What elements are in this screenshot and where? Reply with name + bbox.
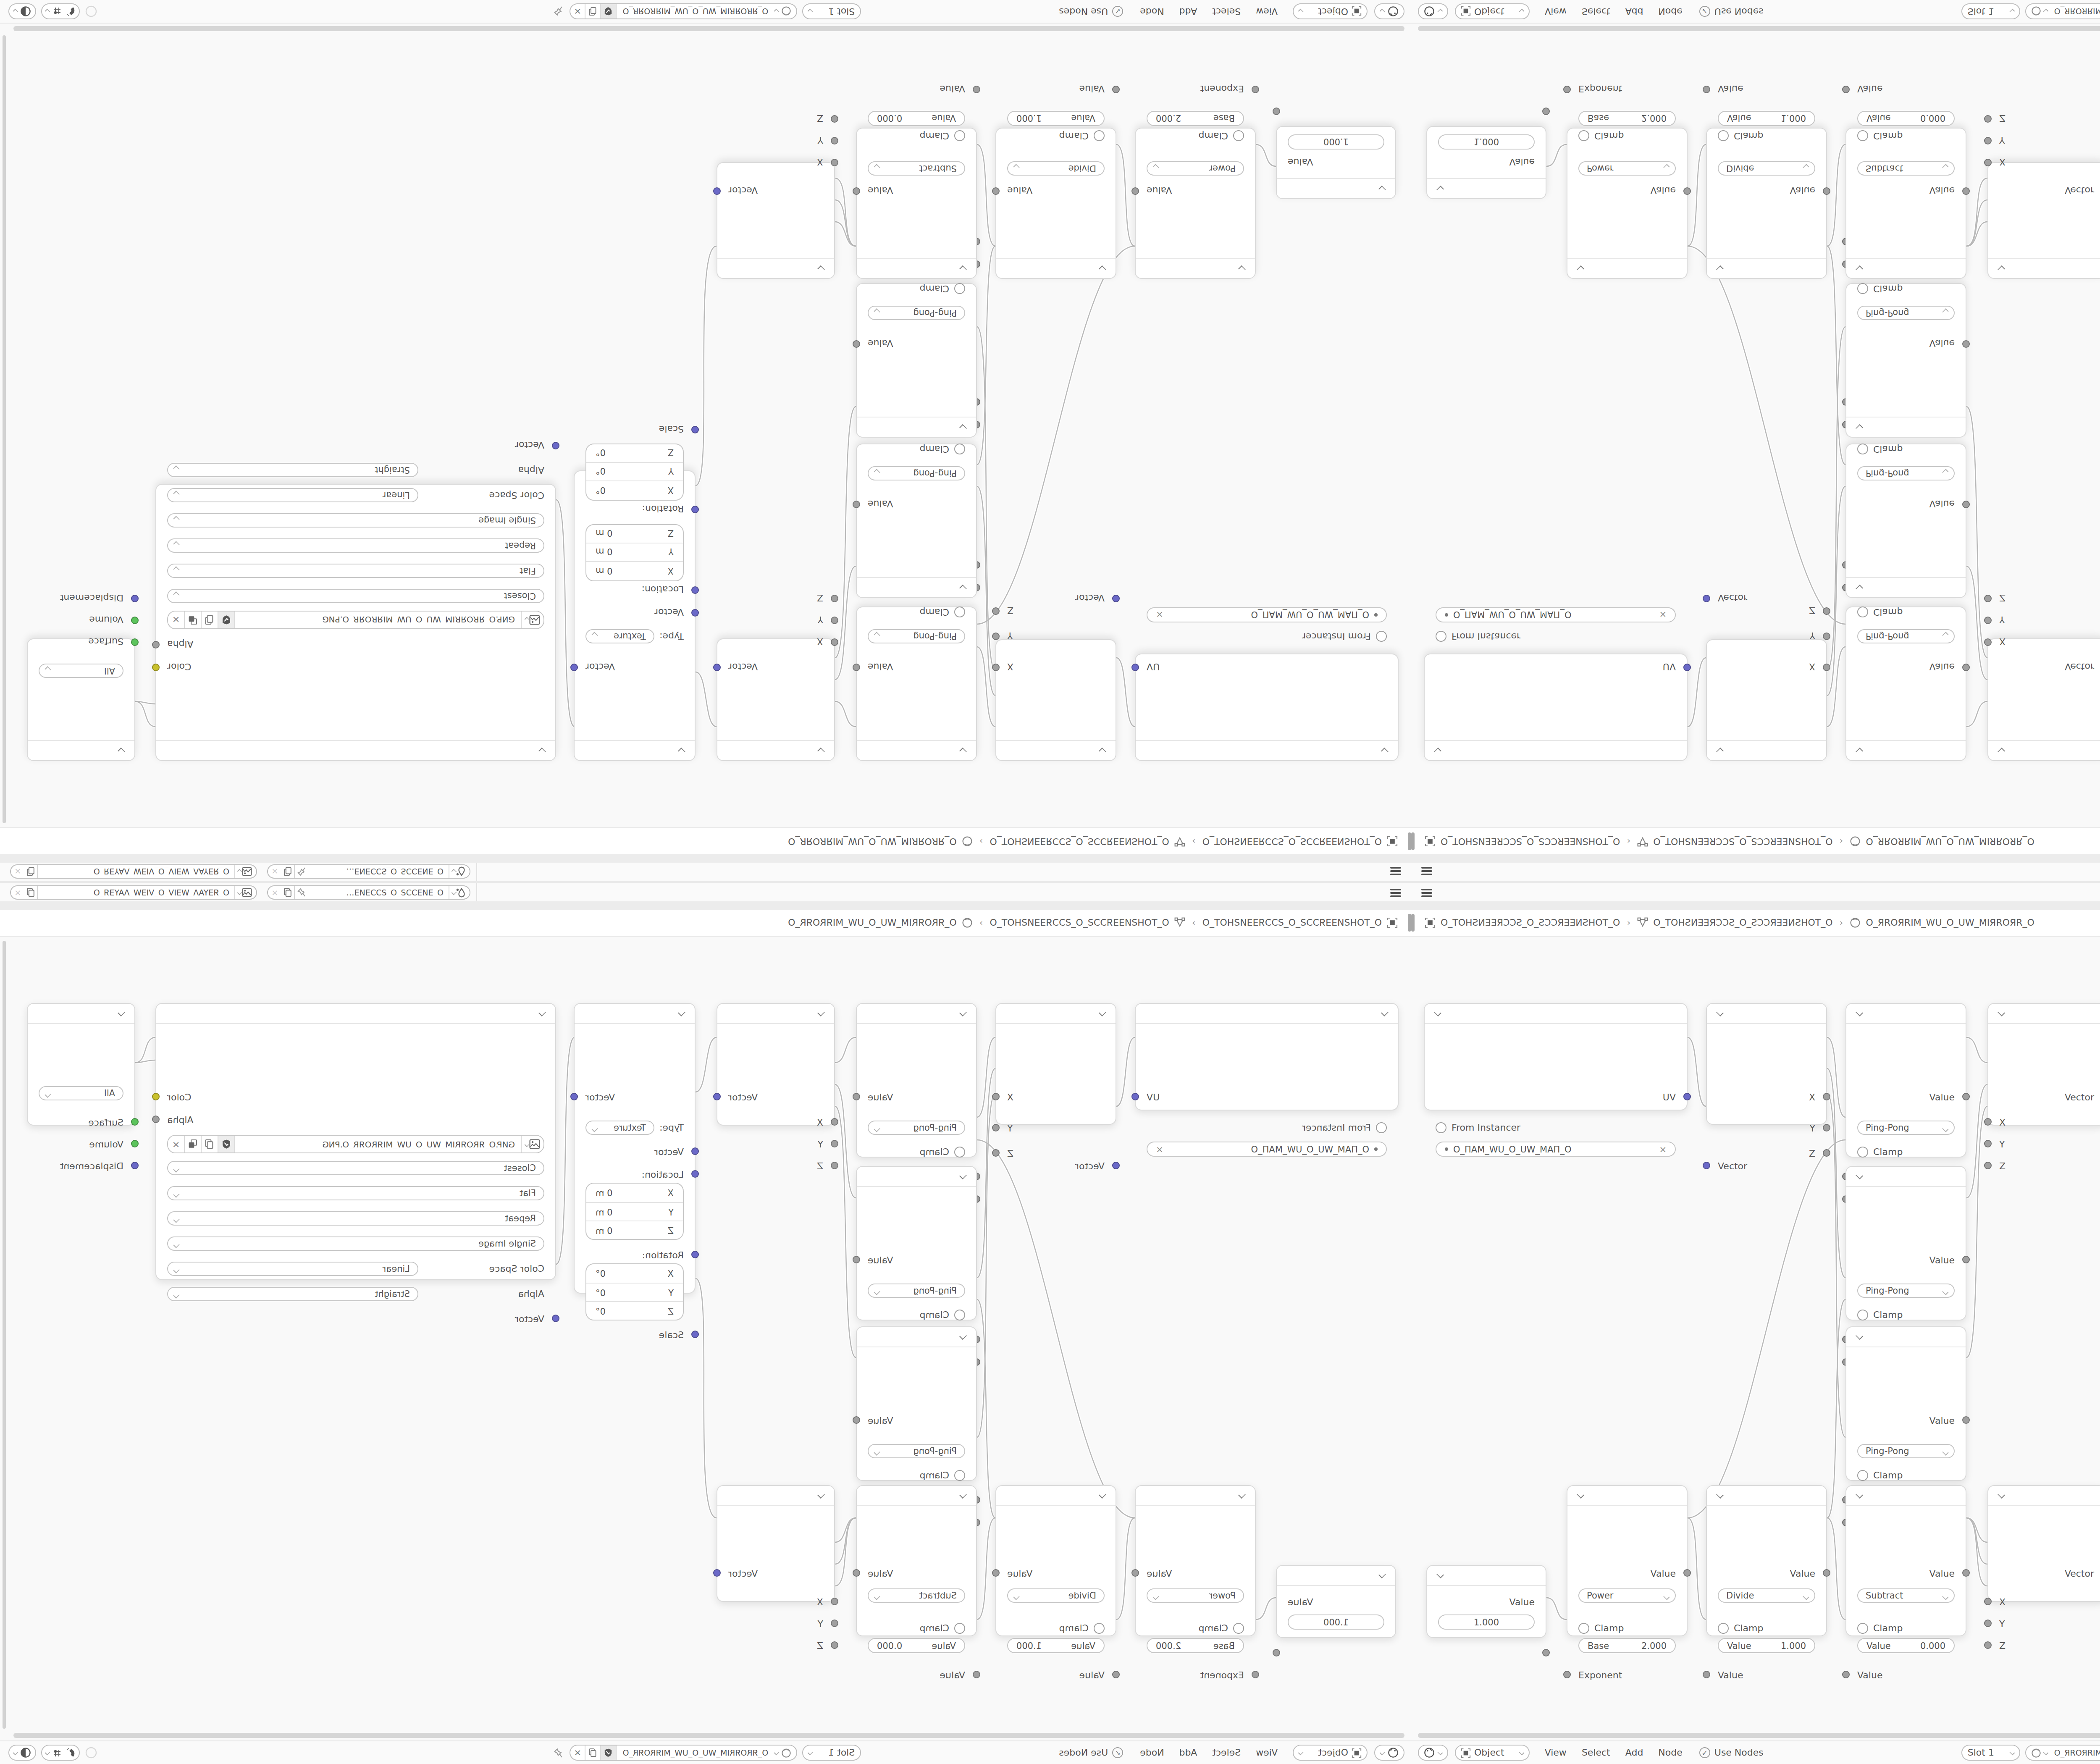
- collapse-chevron-icon[interactable]: [118, 748, 125, 755]
- value-output-socket[interactable]: [1962, 340, 1970, 348]
- breadcrumb-scrollbar[interactable]: [1408, 914, 1411, 932]
- vector-input-socket[interactable]: [552, 442, 559, 449]
- operation-dropdown[interactable]: Ping-Pong: [1857, 1444, 1955, 1458]
- node-uv-map[interactable]: UV From Instancer O_ПAM_WU_O_UW_MAП_O ×: [1424, 1003, 1688, 1110]
- operation-dropdown[interactable]: Ping-Pong: [1857, 630, 1955, 644]
- overlays-toggle[interactable]: [8, 3, 36, 19]
- x-input-socket[interactable]: [1984, 1598, 1992, 1605]
- image-datablock-field[interactable]: GИP.O_ЯROЯRIM_WU_O_UW_MIЯROЯR_O.PNG ×: [167, 611, 544, 629]
- overlays-toggle[interactable]: [8, 1745, 36, 1761]
- material-name[interactable]: O_ЯROЯRIM_WU_O_UW_MIЯROЯR_O: [617, 1748, 774, 1757]
- breadcrumb-scrollbar[interactable]: [1411, 914, 1415, 932]
- value-input-socket[interactable]: [1112, 1671, 1120, 1678]
- collapse-chevron-icon[interactable]: [1577, 1491, 1584, 1499]
- node-value[interactable]: Value 1.000: [1426, 126, 1546, 199]
- clamp-checkbox[interactable]: Clamp: [1578, 129, 1676, 144]
- collapse-chevron-icon[interactable]: [1856, 1491, 1863, 1499]
- editor-split-divider[interactable]: [476, 883, 477, 901]
- breadcrumb-item-object[interactable]: O_TOHƧИƎƎЯƆƆƧ_O_ƧƆƆЯƎƎИƧHOT_O: [1202, 917, 1398, 928]
- fake-user-shield-button[interactable]: [601, 1746, 617, 1760]
- value-field[interactable]: 1.000: [1288, 134, 1384, 150]
- target-dropdown[interactable]: All: [39, 664, 123, 678]
- value-output-socket[interactable]: [1962, 1569, 1970, 1577]
- x-output-socket[interactable]: [1823, 664, 1830, 671]
- source-dropdown[interactable]: Single Image: [167, 514, 544, 528]
- pin-icon[interactable]: [554, 6, 563, 16]
- node-math-pingpong-1[interactable]: Value Ping-Pong Clamp Value Scale: [1845, 1003, 1966, 1158]
- clamp-checkbox[interactable]: Clamp: [1857, 442, 1955, 457]
- pin-icon[interactable]: [295, 867, 309, 876]
- magnet-icon[interactable]: [65, 6, 76, 17]
- value-output-socket[interactable]: [1823, 1569, 1830, 1577]
- clamp-checkbox[interactable]: Clamp: [1718, 1620, 1815, 1635]
- value-output-socket[interactable]: [1542, 108, 1550, 115]
- menu-view[interactable]: View: [1256, 6, 1278, 17]
- vector-output-socket[interactable]: [713, 1093, 721, 1100]
- node-uv-map[interactable]: UV From Instancer O_ПAM_WU_O_UW_MAП_O ×: [1135, 1003, 1399, 1110]
- image-filename[interactable]: GИP.O_ЯROЯRIM_WU_O_UW_MIЯROЯR_O.PNG: [235, 615, 521, 625]
- material-selector[interactable]: O_ЯROЯRIM_WU_O_UW_MIЯROЯR_O ×: [2026, 3, 2100, 19]
- viewlayer-selector-value[interactable]: O_ЯƎYAΛ_WƎIV_O_VIƎW_ΛAYƎЯ_O: [38, 867, 234, 876]
- material-selector[interactable]: O_ЯROЯRIM_WU_O_UW_MIЯROЯR_O ×: [570, 1745, 797, 1761]
- collapse-chevron-icon[interactable]: [1856, 1172, 1863, 1179]
- x-input-socket[interactable]: [831, 1598, 838, 1605]
- surface-input-socket[interactable]: [131, 1118, 139, 1126]
- clamp-checkbox[interactable]: Clamp: [1007, 1620, 1105, 1635]
- clear-icon[interactable]: ×: [1659, 610, 1667, 620]
- node-combine-xyz-1[interactable]: Vector X Y Z: [1987, 638, 2100, 761]
- vector-input-socket[interactable]: [1112, 1162, 1120, 1169]
- node-math-subtract[interactable]: Value Subtract Clamp Value0.000 Value: [1845, 1485, 1966, 1636]
- target-dropdown[interactable]: All: [39, 1086, 123, 1100]
- node-mapping[interactable]: Vector Type: Texture Vector Location: X0…: [574, 1003, 696, 1294]
- clear-icon[interactable]: ×: [1156, 610, 1163, 620]
- uv-output-socket[interactable]: [1683, 1093, 1691, 1100]
- node-mapping[interactable]: Vector Type: Texture Vector Location: X0…: [574, 470, 696, 761]
- value-output-socket[interactable]: [1962, 1416, 1970, 1424]
- value-output-socket[interactable]: [1962, 187, 1970, 195]
- editor-type-button[interactable]: [1418, 3, 1448, 19]
- pack-image-button[interactable]: [185, 612, 202, 628]
- shader-type-dropdown[interactable]: Object: [1293, 1745, 1368, 1761]
- node-value[interactable]: Value 1.000: [1276, 1565, 1396, 1638]
- pin-icon[interactable]: [554, 1748, 563, 1758]
- menu-node[interactable]: Node: [1140, 6, 1164, 17]
- new-copy-button[interactable]: [25, 886, 38, 899]
- vector-input-socket[interactable]: [552, 1315, 559, 1322]
- value-input-socket[interactable]: [1842, 86, 1850, 93]
- vector-output-socket[interactable]: [570, 1093, 578, 1100]
- x-input-socket[interactable]: [831, 159, 838, 166]
- z-input-socket[interactable]: [831, 1641, 838, 1649]
- breadcrumb-item-data[interactable]: O_TOHƧИƎƎЯƆƆƧ_O_ƧƆƆЯƎƎИƧHOT_O: [990, 836, 1185, 847]
- value-input-socket[interactable]: [1703, 86, 1710, 93]
- extension-dropdown[interactable]: Repeat: [167, 1211, 544, 1225]
- surface-input-socket[interactable]: [131, 638, 139, 646]
- node-separate-xyz[interactable]: X Y Z Vector: [1706, 1003, 1827, 1125]
- location-xyz-fields[interactable]: X0 m Y0 m Z0 m: [585, 524, 684, 581]
- operation-dropdown[interactable]: Power: [1578, 162, 1676, 176]
- value-output-socket[interactable]: [853, 1093, 860, 1100]
- proportional-edit-icon[interactable]: [85, 1746, 97, 1759]
- value-output-socket[interactable]: [853, 340, 860, 348]
- collapse-chevron-icon[interactable]: [538, 1009, 546, 1016]
- z-output-socket[interactable]: [992, 1149, 1000, 1157]
- exponent-input-socket[interactable]: [1563, 1671, 1571, 1678]
- location-input-socket[interactable]: [691, 586, 699, 594]
- value-output-socket[interactable]: [853, 664, 860, 671]
- z-output-socket[interactable]: [1823, 607, 1830, 615]
- collapse-chevron-icon[interactable]: [1378, 1571, 1386, 1578]
- value-output-socket[interactable]: [1542, 1649, 1550, 1656]
- z-input-socket[interactable]: [831, 1162, 838, 1169]
- value-field[interactable]: Value0.000: [868, 111, 965, 126]
- x-output-socket[interactable]: [992, 1093, 1000, 1100]
- vector-input-socket[interactable]: [691, 609, 699, 617]
- image-filename[interactable]: GИP.O_ЯROЯRIM_WU_O_UW_MIЯROЯR_O.PNG: [235, 1139, 521, 1149]
- node-value[interactable]: Value 1.000: [1276, 126, 1396, 199]
- use-nodes-checkbox[interactable]: ✓ Use Nodes: [1059, 6, 1123, 17]
- value-output-socket[interactable]: [1683, 187, 1691, 195]
- node-header[interactable]: [1425, 1004, 1687, 1024]
- horizontal-scrollbar[interactable]: [1418, 26, 2100, 31]
- clamp-checkbox[interactable]: Clamp: [1857, 1467, 1955, 1483]
- collapse-chevron-icon[interactable]: [1381, 1009, 1389, 1016]
- base-value-field[interactable]: Base2.000: [1578, 1638, 1676, 1653]
- operation-dropdown[interactable]: Ping-Pong: [868, 467, 965, 481]
- clamp-checkbox[interactable]: Clamp: [1147, 1620, 1244, 1635]
- node-material-output[interactable]: All Surface Volume Displacement: [27, 1003, 135, 1126]
- z-output-socket[interactable]: [1823, 1149, 1830, 1157]
- value-output-socket[interactable]: [1683, 1569, 1691, 1577]
- unlink-material-button[interactable]: ×: [570, 1746, 585, 1760]
- breadcrumb-item-data[interactable]: O_TOHƧИƎƎЯƆƆƧ_O_ƧƆƆЯƎƎИƧHOT_O: [990, 917, 1185, 928]
- value-output-socket[interactable]: [1131, 1569, 1139, 1577]
- from-instancer-checkbox[interactable]: From Instancer: [1436, 629, 1676, 644]
- collapse-chevron-icon[interactable]: [1436, 1571, 1444, 1578]
- unlink-image-button[interactable]: ×: [168, 612, 185, 628]
- value-output-socket[interactable]: [1962, 1093, 1970, 1100]
- operation-dropdown[interactable]: Subtract: [1857, 162, 1955, 176]
- node-separate-xyz[interactable]: X Y Z Vector: [995, 639, 1116, 761]
- uv-map-name-field[interactable]: O_ПAM_WU_O_UW_MAП_O ×: [1436, 1142, 1676, 1157]
- vector-output-socket[interactable]: [570, 664, 578, 671]
- clamp-checkbox[interactable]: Clamp: [1857, 129, 1955, 144]
- shader-type-dropdown[interactable]: Object: [1293, 3, 1368, 19]
- menu-view[interactable]: View: [1545, 1747, 1567, 1758]
- material-name[interactable]: O_ЯROЯRIM_WU_O_UW_MIЯROЯR_O: [2048, 1748, 2100, 1757]
- snap-mode-icon[interactable]: [52, 1748, 62, 1758]
- value-input-socket[interactable]: [1842, 1671, 1850, 1678]
- collapse-chevron-icon[interactable]: [1436, 186, 1444, 193]
- collapse-chevron-icon[interactable]: [1716, 1009, 1724, 1016]
- copy-material-button[interactable]: [585, 1746, 601, 1760]
- node-combine-xyz-1[interactable]: Vector X Y Z: [717, 1003, 835, 1126]
- x-input-socket[interactable]: [1984, 159, 1992, 166]
- y-input-socket[interactable]: [1984, 137, 1992, 144]
- node-uv-map[interactable]: UV From Instancer O_ПAM_WU_O_UW_MAП_O ×: [1135, 654, 1399, 761]
- exponent-input-socket[interactable]: [1563, 86, 1571, 93]
- node-math-pingpong-3[interactable]: Value Ping-Pong Clamp Value Scale: [1845, 283, 1966, 438]
- node-math-divide[interactable]: Value Divide Clamp Value1.000 Value: [995, 128, 1116, 279]
- y-input-socket[interactable]: [1984, 1620, 1992, 1627]
- pin-icon[interactable]: [295, 888, 309, 897]
- color-output-socket[interactable]: [152, 1093, 160, 1100]
- scene-selector-value[interactable]: O_ƎИƎƆƆƧ_O_ƧƆƆƎИƎ…: [309, 867, 449, 876]
- exponent-input-socket[interactable]: [1252, 86, 1259, 93]
- vector-input-socket[interactable]: [1112, 595, 1120, 602]
- displacement-input-socket[interactable]: [131, 1162, 139, 1169]
- alpha-mode-dropdown[interactable]: Straight: [167, 1286, 418, 1301]
- from-instancer-checkbox[interactable]: From Instancer: [1436, 1120, 1676, 1135]
- uv-map-name-field[interactable]: O_ПAM_WU_O_UW_MAП_O ×: [1436, 607, 1676, 622]
- collapse-chevron-icon[interactable]: [1099, 265, 1106, 273]
- node-math-power[interactable]: Value Power Clamp Base2.000 Exponent: [1567, 1485, 1688, 1636]
- breadcrumb-item-material[interactable]: O_ЯROЯRIM_WU_O_UW_MIЯROЯR_O: [788, 836, 973, 847]
- collapse-chevron-icon[interactable]: [1998, 1009, 2005, 1016]
- clamp-checkbox[interactable]: Clamp: [1147, 129, 1244, 144]
- collapse-chevron-icon[interactable]: [1378, 186, 1386, 193]
- vector-input-socket[interactable]: [691, 1147, 699, 1155]
- operation-dropdown[interactable]: Ping-Pong: [1857, 1283, 1955, 1297]
- checkbox-circle[interactable]: [1376, 1122, 1387, 1133]
- node-editor-canvas[interactable]: UV From Instancer O_ПAM_WU_O_UW_MAП_O × …: [0, 24, 1411, 827]
- collapse-chevron-icon[interactable]: [959, 748, 967, 755]
- y-input-socket[interactable]: [831, 1140, 838, 1147]
- clear-icon[interactable]: ×: [1156, 1144, 1163, 1154]
- mapping-type-dropdown[interactable]: Texture: [585, 630, 654, 644]
- collapse-chevron-icon[interactable]: [1856, 1009, 1863, 1016]
- operation-dropdown[interactable]: Ping-Pong: [868, 1120, 965, 1134]
- value-output-socket[interactable]: [853, 187, 860, 195]
- from-instancer-checkbox[interactable]: From Instancer: [1147, 629, 1387, 644]
- pack-image-button[interactable]: [185, 1136, 202, 1152]
- vector-input-socket[interactable]: [1703, 595, 1710, 602]
- operation-dropdown[interactable]: Ping-Pong: [1857, 306, 1955, 320]
- menu-select[interactable]: Select: [1212, 1747, 1241, 1758]
- menu-add[interactable]: Add: [1625, 6, 1643, 17]
- image-datablock-field[interactable]: GИP.O_ЯROЯRIM_WU_O_UW_MIЯROЯR_O.PNG ×: [167, 1135, 544, 1153]
- node-math-pingpong-2[interactable]: Value Ping-Pong Clamp Value Scale: [1845, 444, 1966, 598]
- node-math-power[interactable]: Value Power Clamp Base2.000 Exponent: [1135, 128, 1256, 279]
- slot-dropdown[interactable]: Slot 1: [802, 3, 861, 19]
- rotation-xyz-fields[interactable]: X0° Y0° Z0°: [585, 444, 684, 501]
- scale-input-socket[interactable]: [691, 426, 699, 433]
- use-nodes-checkbox[interactable]: ✓ Use Nodes: [1699, 6, 1764, 17]
- vector-input-socket[interactable]: [1703, 1162, 1710, 1169]
- node-math-power[interactable]: Value Power Clamp Base2.000 Exponent: [1567, 128, 1688, 279]
- collapse-chevron-icon[interactable]: [1716, 265, 1724, 273]
- fake-user-shield-button[interactable]: [601, 4, 617, 18]
- clamp-checkbox[interactable]: Clamp: [1007, 129, 1105, 144]
- operation-dropdown[interactable]: Divide: [1718, 1588, 1815, 1602]
- value-output-socket[interactable]: [853, 1416, 860, 1424]
- clamp-checkbox[interactable]: Clamp: [868, 1467, 965, 1483]
- operation-dropdown[interactable]: Power: [1147, 1588, 1244, 1602]
- collapse-chevron-icon[interactable]: [678, 1009, 685, 1016]
- menu-node[interactable]: Node: [1658, 1747, 1682, 1758]
- x-output-socket[interactable]: [992, 664, 1000, 671]
- new-copy-button[interactable]: [282, 886, 295, 899]
- node-combine-xyz-2[interactable]: Vector X Y Z: [1987, 1485, 2100, 1602]
- y-input-socket[interactable]: [831, 137, 838, 144]
- node-separate-xyz[interactable]: X Y Z Vector: [995, 1003, 1116, 1125]
- clamp-checkbox[interactable]: Clamp: [868, 281, 965, 297]
- horizontal-scrollbar[interactable]: [13, 26, 1404, 31]
- hamburger-icon[interactable]: [1421, 889, 1432, 890]
- interpolation-dropdown[interactable]: Closest: [167, 1160, 544, 1175]
- editor-type-button[interactable]: [1374, 3, 1404, 19]
- node-math-pingpong-2[interactable]: Value Ping-Pong Clamp Value Scale: [856, 1166, 977, 1320]
- menu-add[interactable]: Add: [1179, 1747, 1197, 1758]
- checkbox-circle[interactable]: [1436, 631, 1446, 642]
- value-field[interactable]: Value0.000: [1857, 111, 1955, 126]
- copy-datablock-button[interactable]: [202, 612, 218, 628]
- node-combine-xyz-1[interactable]: Vector X Y Z: [1987, 1003, 2100, 1126]
- node-math-divide[interactable]: Value Divide Clamp Value1.000 Value: [1706, 128, 1827, 279]
- uv-map-name-field[interactable]: O_ПAM_WU_O_UW_MAП_O ×: [1147, 607, 1387, 622]
- clamp-checkbox[interactable]: Clamp: [868, 1307, 965, 1322]
- value-input-socket[interactable]: [973, 1671, 980, 1678]
- z-input-socket[interactable]: [1984, 1162, 1992, 1169]
- unlink-button[interactable]: ×: [268, 888, 282, 897]
- collapse-chevron-icon[interactable]: [1434, 748, 1441, 755]
- unlink-button[interactable]: ×: [268, 867, 282, 876]
- operation-dropdown[interactable]: Ping-Pong: [868, 306, 965, 320]
- node-combine-xyz-2[interactable]: Vector X Y Z: [1987, 162, 2100, 279]
- editor-type-button[interactable]: [1374, 1745, 1404, 1761]
- breadcrumb-item-object[interactable]: O_TOHƧИƎƎЯƆƆƧ_O_ƧƆƆЯƎƎИƧHOT_O: [1425, 917, 1620, 928]
- clamp-checkbox[interactable]: Clamp: [868, 605, 965, 620]
- x-input-socket[interactable]: [831, 638, 838, 646]
- location-input-socket[interactable]: [691, 1170, 699, 1178]
- value-input-socket[interactable]: [1703, 1671, 1710, 1678]
- value-output-socket[interactable]: [1962, 501, 1970, 508]
- node-math-subtract[interactable]: Value Subtract Clamp Value0.000 Value: [856, 1485, 977, 1636]
- checkbox-circle[interactable]: [1376, 631, 1387, 642]
- operation-dropdown[interactable]: Ping-Pong: [1857, 1120, 1955, 1134]
- projection-dropdown[interactable]: Flat: [167, 1186, 544, 1200]
- use-nodes-checkbox[interactable]: ✓ Use Nodes: [1059, 1747, 1123, 1758]
- material-selector[interactable]: O_ЯROЯRIM_WU_O_UW_MIЯROЯR_O ×: [570, 3, 797, 19]
- clamp-checkbox[interactable]: Clamp: [1857, 1307, 1955, 1322]
- value-field[interactable]: Value1.000: [1007, 111, 1105, 126]
- menu-select[interactable]: Select: [1582, 6, 1610, 17]
- value-output-socket[interactable]: [1131, 187, 1139, 195]
- collapse-chevron-icon[interactable]: [959, 1332, 967, 1340]
- slot-dropdown[interactable]: Slot 1: [1962, 3, 2021, 19]
- collapse-chevron-icon[interactable]: [1238, 1491, 1246, 1499]
- vertical-scrollbar[interactable]: [3, 941, 6, 1729]
- from-instancer-checkbox[interactable]: From Instancer: [1147, 1120, 1387, 1135]
- z-input-socket[interactable]: [831, 115, 838, 123]
- y-input-socket[interactable]: [1984, 617, 1992, 624]
- copy-material-button[interactable]: [585, 4, 601, 18]
- value-field[interactable]: Value1.000: [1007, 1638, 1105, 1653]
- alpha-output-socket[interactable]: [152, 641, 160, 648]
- uv-map-name-field[interactable]: O_ПAM_WU_O_UW_MAП_O ×: [1147, 1142, 1387, 1157]
- editor-type-button[interactable]: [1418, 1745, 1448, 1761]
- menu-add[interactable]: Add: [1179, 6, 1197, 17]
- node-uv-map[interactable]: UV From Instancer O_ПAM_WU_O_UW_MAП_O ×: [1424, 654, 1688, 761]
- breadcrumb-item-data[interactable]: O_TOHƧИƎƎЯƆƆƧ_O_ƧƆƆЯƎƎИƧHOT_O: [1637, 836, 1832, 847]
- collapse-chevron-icon[interactable]: [1434, 1009, 1441, 1016]
- proportional-edit-icon[interactable]: [85, 5, 97, 18]
- clamp-checkbox[interactable]: Clamp: [868, 1620, 965, 1635]
- collapse-chevron-icon[interactable]: [959, 424, 967, 432]
- collapse-chevron-icon[interactable]: [1716, 748, 1724, 755]
- snap-mode-icon[interactable]: [52, 6, 62, 16]
- collapse-chevron-icon[interactable]: [1238, 265, 1246, 273]
- new-copy-button[interactable]: [282, 865, 295, 878]
- collapse-chevron-icon[interactable]: [538, 748, 546, 755]
- node-math-divide[interactable]: Value Divide Clamp Value1.000 Value: [995, 1485, 1116, 1636]
- clamp-checkbox[interactable]: Clamp: [1857, 605, 1955, 620]
- shader-type-dropdown[interactable]: Object: [1455, 3, 1530, 19]
- node-header[interactable]: [1425, 740, 1687, 760]
- menu-view[interactable]: View: [1256, 1747, 1278, 1758]
- x-input-socket[interactable]: [831, 1118, 838, 1126]
- rotation-input-socket[interactable]: [691, 506, 699, 513]
- value-input-socket[interactable]: [1112, 86, 1120, 93]
- slot-dropdown[interactable]: Slot 1: [802, 1745, 861, 1761]
- clamp-checkbox[interactable]: Clamp: [1857, 1144, 1955, 1159]
- collapse-chevron-icon[interactable]: [1099, 748, 1106, 755]
- node-separate-xyz[interactable]: X Y Z Vector: [1706, 639, 1827, 761]
- value-output-socket[interactable]: [853, 1256, 860, 1263]
- alpha-mode-dropdown[interactable]: Straight: [167, 463, 418, 478]
- node-material-output[interactable]: All Surface Volume Displacement: [27, 638, 135, 761]
- hamburger-icon[interactable]: [1421, 874, 1432, 875]
- operation-dropdown[interactable]: Subtract: [868, 162, 965, 176]
- horizontal-scrollbar[interactable]: [1418, 1733, 2100, 1738]
- node-combine-xyz-1[interactable]: Vector X Y Z: [717, 638, 835, 761]
- node-image-texture[interactable]: Color Alpha GИP.O_ЯROЯRIM_WU_O_UW_MIЯROЯ…: [155, 484, 556, 761]
- scene-selector[interactable]: O_ƎИƎƆƆƧ_O_ƧƆƆƎИƎ… ×: [267, 864, 470, 879]
- value-output-socket[interactable]: [1823, 187, 1830, 195]
- unlink-image-button[interactable]: ×: [168, 1136, 185, 1152]
- uv-output-socket[interactable]: [1683, 664, 1691, 671]
- x-input-socket[interactable]: [1984, 638, 1992, 646]
- collapse-chevron-icon[interactable]: [678, 748, 685, 755]
- y-output-socket[interactable]: [1823, 633, 1830, 640]
- value-field[interactable]: 1.000: [1438, 1614, 1535, 1630]
- breadcrumb-item-material[interactable]: O_ЯROЯRIM_WU_O_UW_MIЯROЯR_O: [788, 917, 973, 928]
- value-field[interactable]: 1.000: [1438, 134, 1535, 150]
- node-header[interactable]: [1136, 1004, 1398, 1024]
- material-name[interactable]: O_ЯROЯRIM_WU_O_UW_MIЯROЯR_O: [617, 7, 774, 16]
- clamp-checkbox[interactable]: Clamp: [1578, 1620, 1676, 1635]
- node-math-subtract[interactable]: Value Subtract Clamp Value0.000 Value: [1845, 128, 1966, 279]
- collapse-chevron-icon[interactable]: [817, 265, 825, 273]
- menu-node[interactable]: Node: [1658, 6, 1682, 17]
- node-math-pingpong-1[interactable]: Value Ping-Pong Clamp Value Scale: [1845, 606, 1966, 761]
- z-output-socket[interactable]: [992, 607, 1000, 615]
- node-math-pingpong-3[interactable]: Value Ping-Pong Clamp Value Scale: [856, 283, 977, 438]
- rotation-xyz-fields[interactable]: X0° Y0° Z0°: [585, 1263, 684, 1320]
- horizontal-scrollbar[interactable]: [13, 1733, 1404, 1738]
- operation-dropdown[interactable]: Subtract: [868, 1588, 965, 1602]
- operation-dropdown[interactable]: Ping-Pong: [868, 630, 965, 644]
- breadcrumb-item-object[interactable]: O_TOHƧИƎƎЯƆƆƧ_O_ƧƆƆЯƎƎИƧHOT_O: [1425, 836, 1620, 847]
- operation-dropdown[interactable]: Ping-Pong: [868, 1444, 965, 1458]
- node-math-subtract[interactable]: Value Subtract Clamp Value0.000 Value: [856, 128, 977, 279]
- node-editor-canvas[interactable]: UV From Instancer O_ПAM_WU_O_UW_MAП_O × …: [1411, 24, 2100, 827]
- value-output-socket[interactable]: [1962, 664, 1970, 671]
- location-xyz-fields[interactable]: X0 m Y0 m Z0 m: [585, 1183, 684, 1240]
- checkbox-circle[interactable]: [1436, 1122, 1446, 1133]
- hamburger-icon[interactable]: [1390, 874, 1401, 875]
